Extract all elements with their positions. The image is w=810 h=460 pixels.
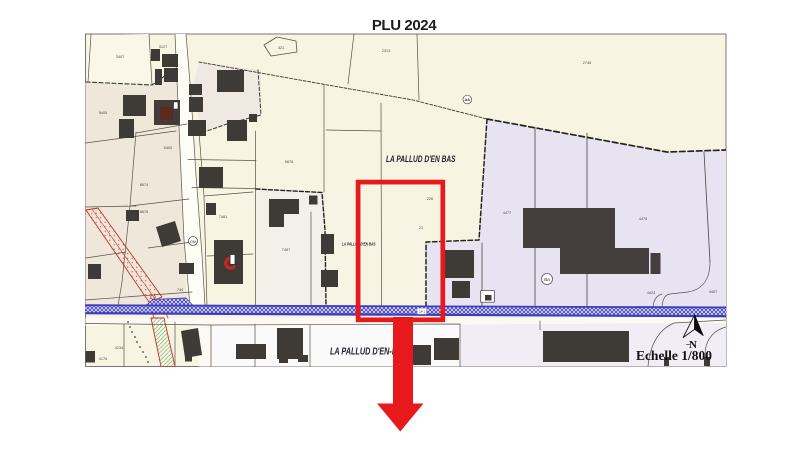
svg-text:3127: 3127 bbox=[159, 45, 167, 49]
svg-text:226: 226 bbox=[427, 197, 433, 201]
svg-text:4478: 4478 bbox=[639, 217, 647, 221]
svg-text:5876: 5876 bbox=[285, 160, 293, 164]
svg-text:8674: 8674 bbox=[140, 183, 148, 187]
svg-text:4176: 4176 bbox=[99, 357, 107, 361]
svg-text:2313: 2313 bbox=[382, 49, 390, 53]
svg-text:744: 744 bbox=[177, 288, 183, 292]
svg-text:4477: 4477 bbox=[503, 211, 511, 215]
svg-text:5405: 5405 bbox=[99, 111, 107, 115]
svg-text:7487: 7487 bbox=[282, 248, 290, 252]
svg-text:4423: 4423 bbox=[647, 291, 655, 295]
svg-text:21: 21 bbox=[419, 226, 423, 230]
svg-text:Ba: Ba bbox=[544, 277, 550, 282]
svg-text:PLU 2024: PLU 2024 bbox=[372, 17, 437, 34]
svg-text:Echelle 1/800: Echelle 1/800 bbox=[636, 348, 712, 363]
svg-text:321: 321 bbox=[278, 46, 284, 50]
svg-text:8676: 8676 bbox=[140, 210, 148, 214]
svg-text:7481: 7481 bbox=[219, 215, 227, 219]
svg-text:4234: 4234 bbox=[115, 346, 123, 350]
svg-text:LA PALLUD D'EN BAS: LA PALLUD D'EN BAS bbox=[386, 154, 456, 165]
svg-text:AA: AA bbox=[465, 98, 471, 102]
svg-text:4407: 4407 bbox=[709, 290, 717, 294]
svg-text:GM: GM bbox=[190, 240, 196, 244]
svg-text:5400: 5400 bbox=[164, 146, 172, 150]
svg-text:3P1: 3P1 bbox=[419, 310, 425, 314]
svg-text:2746: 2746 bbox=[583, 61, 591, 65]
svg-text:3407: 3407 bbox=[116, 55, 124, 59]
